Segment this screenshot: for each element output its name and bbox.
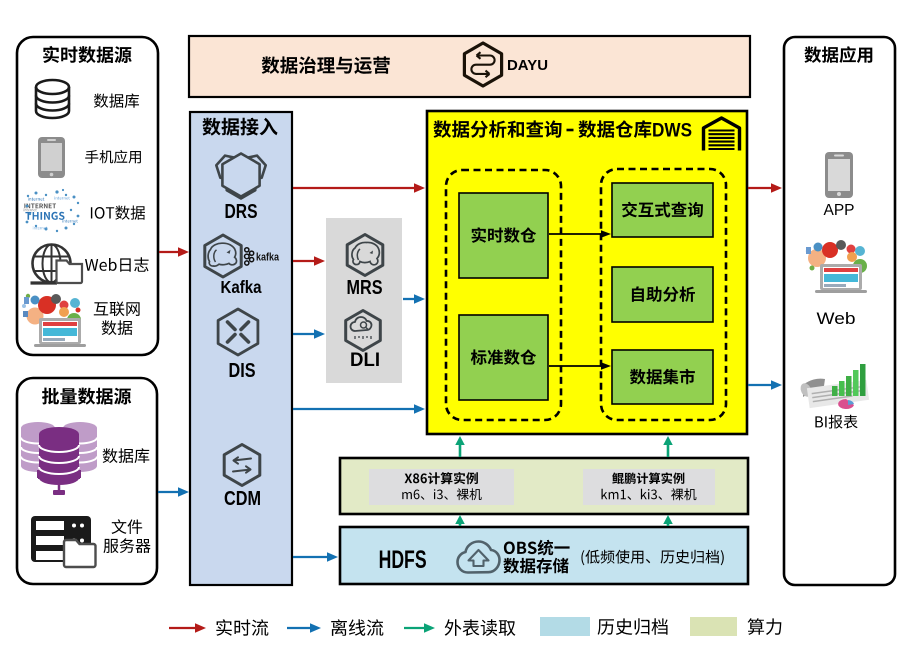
svg-text:APP: APP [823,202,854,219]
svg-text:kafka: kafka [256,252,280,264]
svg-text:HDFS: HDFS [379,546,427,574]
svg-text:Web: Web [817,309,856,328]
svg-text:DIS: DIS [229,360,256,382]
svg-text:Kafka: Kafka [221,277,262,297]
svg-text:CDM: CDM [224,488,261,510]
svg-text:DAYU: DAYU [507,57,548,74]
svg-text:MRS: MRS [347,277,383,299]
svg-text:DLI: DLI [350,349,380,371]
svg-text:DRS: DRS [225,201,258,223]
svg-text:DWS: DWS [652,121,692,142]
